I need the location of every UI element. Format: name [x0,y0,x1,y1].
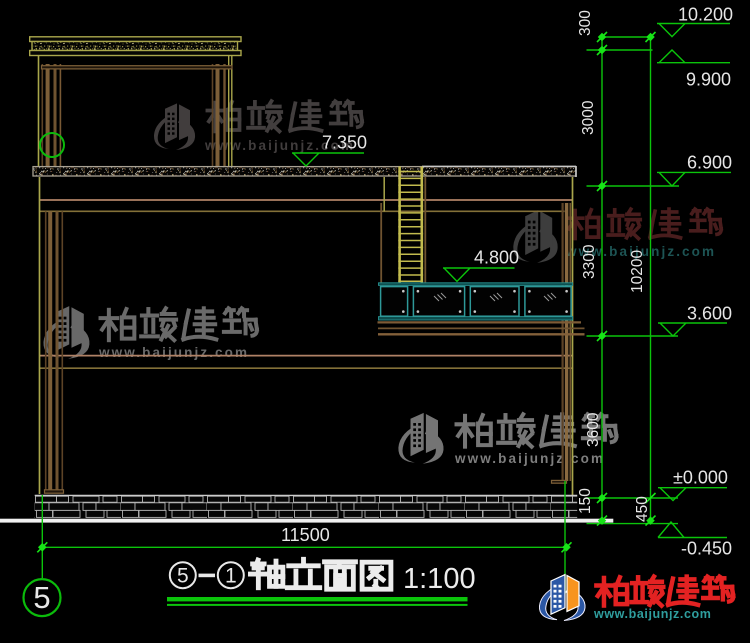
svg-text:7.350: 7.350 [322,133,367,153]
svg-text:1: 1 [225,565,237,588]
svg-text:9.900: 9.900 [686,70,731,90]
svg-text:4.800: 4.800 [474,248,519,268]
svg-text:3.600: 3.600 [687,304,732,324]
svg-text:10.200: 10.200 [678,5,733,25]
svg-text:-0.450: -0.450 [681,539,732,559]
svg-text:10200: 10200 [629,250,646,293]
svg-text:±0.000: ±0.000 [673,468,728,488]
svg-text:3300: 3300 [581,244,598,279]
svg-text:1:100: 1:100 [403,563,476,595]
svg-text:www.baijunjz.com: www.baijunjz.com [454,451,605,466]
svg-text:5: 5 [33,580,50,615]
svg-text:300: 300 [577,10,594,36]
svg-text:6.900: 6.900 [687,153,732,173]
svg-text:3600: 3600 [585,412,602,447]
svg-text:www.baijunjz.com: www.baijunjz.com [98,345,249,360]
svg-text:450: 450 [634,496,651,522]
svg-text:www.baijunjz.com: www.baijunjz.com [593,607,711,621]
svg-text:11500: 11500 [281,525,330,545]
svg-text:3000: 3000 [580,100,597,135]
svg-text:5: 5 [177,565,189,588]
svg-text:150: 150 [577,488,594,514]
